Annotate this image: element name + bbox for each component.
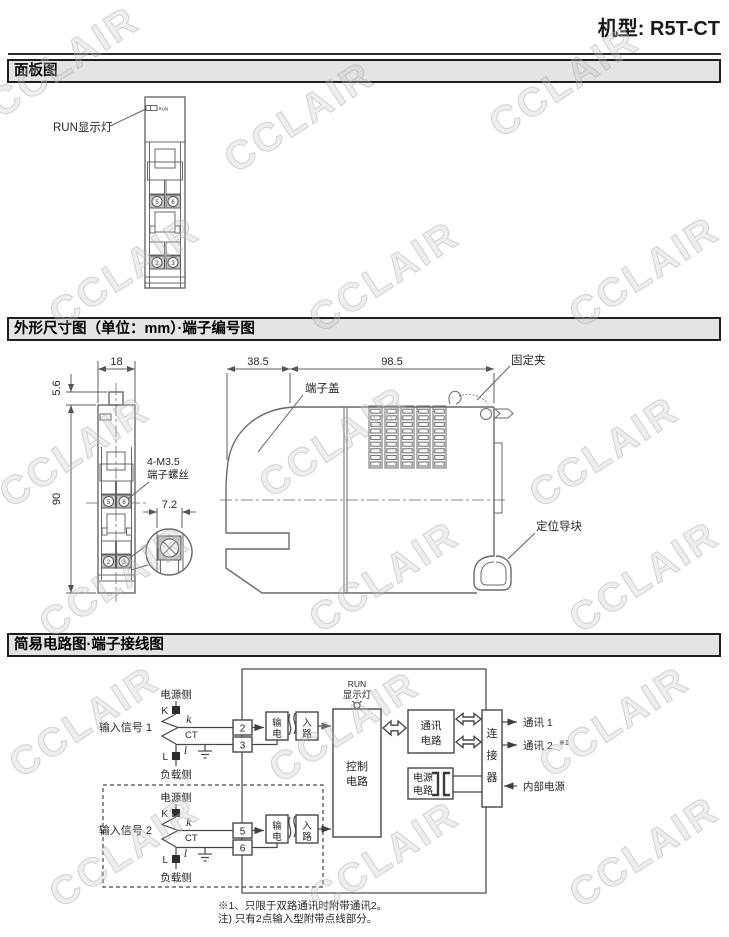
connector-char: 接 [487,749,498,762]
screw-detail: 7.2 [131,499,196,576]
run-lamp: RUN 显示灯 [343,679,372,710]
block-char: 入 [302,821,312,832]
block-char: 电 [272,728,282,740]
run-led-callout: RUN显示灯 [53,109,146,134]
block-char: 输 [272,717,282,729]
input-circuit-block-2: 输 电 入 路 [252,815,331,848]
panel-diagram: RUN 5 6 2 3 [0,83,729,317]
k-terminal-label: K [161,706,168,717]
external-connections: 通讯 1 通讯 2 ※1 内部电源 [502,716,569,793]
screw-note-line2: 端子螺丝 [147,468,189,481]
connector-block: 连 接 器 [482,710,502,807]
comm2-label: 通讯 2 [523,739,553,752]
control-comm-bus-arrow [383,721,406,735]
section-title: 外形尺寸图（单位：mm）·端子编号图 [9,319,719,339]
guide-block-label: 定位导块 [536,519,582,533]
header-divider [8,53,721,55]
control-line2: 电路 [346,775,368,788]
dim-screw-pitch: 7.2 [162,499,177,511]
input-signal-1: 输入信号 1 电源侧 K CT k l L 负载侧 2 3 [99,688,252,781]
input2-label: 输入信号 2 [99,823,152,837]
run-led: RUN [146,106,168,112]
page-title: 机型: R5T-CT [598,12,720,41]
terminal-cover-label: 端子盖 [305,381,340,395]
block-char: 电 [272,831,282,843]
section-header-panel: 面板图 [7,59,721,83]
run-lamp-line1: RUN [348,679,366,689]
input-circuit-block-1: 输 电 入 路 [252,712,331,745]
terminal-6: 6 [240,844,246,855]
input1-label: 输入信号 1 [99,720,152,734]
l-wire-label: l [184,746,187,757]
datasheet-page: CCLAIRCCLAIRCCLAIRCCLAIRCCLAIRCCLAIRCCLA… [0,0,729,937]
comm-circuit-block: 通讯 电路 [408,710,454,753]
note-2: 注) 只有2点输入型附带点线部分。 [218,912,377,925]
terminal-5: 5 [240,827,246,838]
block-char: 路 [302,728,312,740]
panel-device: RUN 5 6 2 3 [145,97,185,288]
section-title: 面板图 [9,61,719,81]
dim-height: 90 [51,493,63,505]
load-side-label: 负载侧 [160,871,192,884]
section-header-dimensions: 外形尺寸图（单位：mm）·端子编号图 [7,317,721,341]
block-char: 入 [302,718,312,729]
k-terminal-label: K [161,809,168,820]
note-1: ※1、只限于双路通讯时附带通讯2。 [218,899,387,912]
block-char: 路 [302,831,312,843]
input-signal-2: 输入信号 2 电源侧 K CT k l L 负载侧 5 6 [99,791,252,884]
run-led-label: RUN显示灯 [53,121,113,134]
dim-body-depth: 98.5 [381,356,402,368]
k-wire-label: k [186,715,192,726]
comm1-label: 通讯 1 [523,716,553,729]
ct-label: CT [185,730,198,741]
power-line1: 电源 [413,771,433,784]
comm-connector-arrow-1 [456,714,481,725]
circuit-diagram: 输入信号 1 电源侧 K CT k l L 负载侧 2 3 [0,658,729,937]
l-wire-label: l [184,849,187,860]
ct-symbol [162,817,178,847]
comm2-footnote-ref: ※1 [559,740,569,747]
ct-symbol [162,714,178,744]
fixing-clip-label: 固定夹 [511,353,546,367]
run-lamp-line2: 显示灯 [343,690,372,701]
side-dimensions: 38.5 98.5 端子盖 固定夹 定位导块 [227,353,582,559]
power-circuit-block: 电源 电路 [408,768,482,799]
front-view: 5 6 2 3 [86,383,148,602]
k-wire-label: k [186,818,192,829]
dim-knob: 5.6 [51,380,63,395]
circuit-notes: ※1、只限于双路通讯时附带通讯2。 注) 只有2点输入型附带点线部分。 [218,899,387,925]
section-title: 简易电路图·端子接线图 [9,635,719,655]
control-circuit-block: 控制 电路 [333,709,381,837]
control-line1: 控制 [346,759,368,773]
connector-char: 连 [487,727,498,740]
ct-label: CT [185,833,198,844]
l-terminal-label: L [162,855,168,866]
block-char: 输 [272,820,282,832]
side-view [220,391,513,593]
comm-connector-arrow-2 [456,737,481,748]
terminal-2: 2 [240,724,246,735]
load-side-label: 负载侧 [160,768,192,781]
internal-power-label: 内部电源 [523,780,565,793]
run-led-text: RUN [159,107,169,112]
power-side-label: 电源侧 [160,791,192,804]
power-line2: 电路 [413,784,433,797]
dimension-diagram: 5 6 2 3 18 5.6 [0,345,729,634]
terminal-3: 3 [240,741,246,752]
comm-line2: 电路 [421,734,442,747]
section-header-circuit: 简易电路图·端子接线图 [7,633,721,657]
l-terminal-label: L [162,752,168,763]
dim-width: 18 [110,356,122,368]
connector-char: 器 [487,771,498,784]
power-side-label: 电源侧 [160,688,192,701]
release-lever [495,409,513,418]
screw-note-line1: 4-M3.5 [147,456,180,468]
dim-cover-depth: 38.5 [247,356,268,368]
comm-line1: 通讯 [421,719,442,732]
